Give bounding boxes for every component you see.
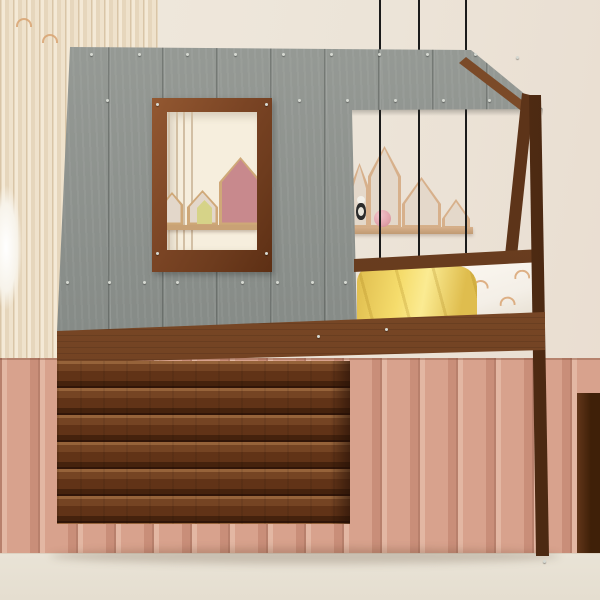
lower-bunk-rail — [0, 0, 600, 600]
bedroom-photo — [0, 0, 600, 600]
